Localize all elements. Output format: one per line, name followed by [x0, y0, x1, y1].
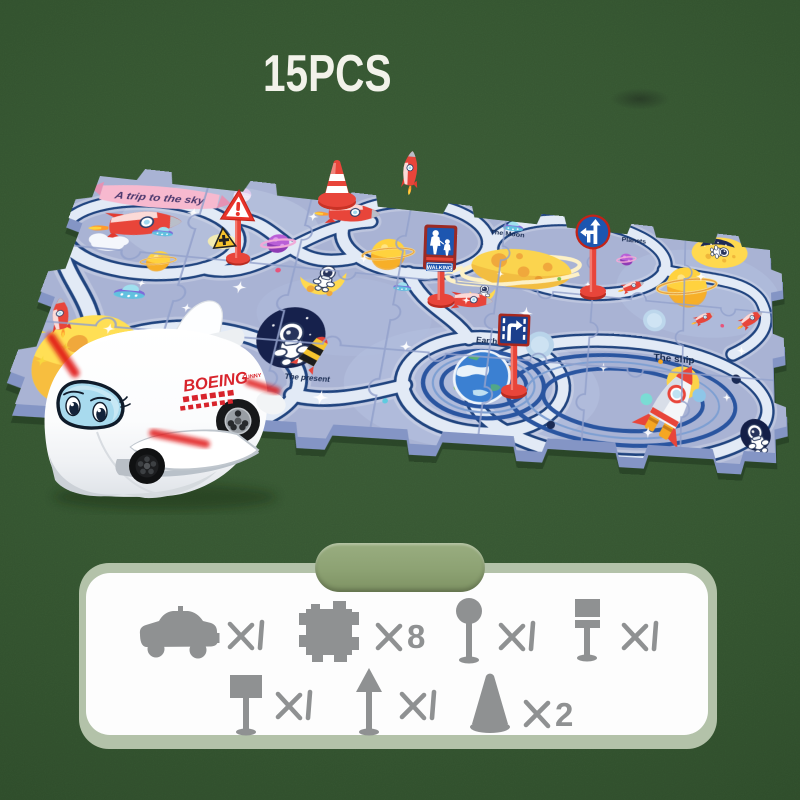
svg-text:WALKING: WALKING	[427, 265, 452, 272]
svg-text:8: 8	[407, 618, 425, 655]
svg-text:2: 2	[555, 696, 573, 733]
